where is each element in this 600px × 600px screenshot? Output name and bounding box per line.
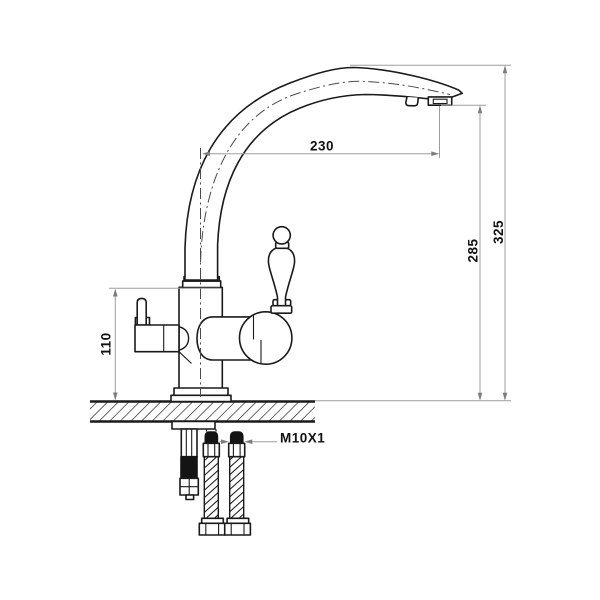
right-valve [197, 312, 292, 364]
dimension-overall-height: 325 [491, 65, 507, 400]
dimension-annotations: 230 110 285 325 M10X1 [99, 65, 512, 445]
hose-left-braid [204, 457, 218, 519]
mounting-stud [180, 429, 198, 500]
left-valve-block [135, 325, 179, 352]
handle-ball-top [273, 227, 290, 244]
faucet-drawing-canvas: 230 110 285 325 M10X1 [0, 0, 600, 600]
spout-underside-tab [406, 97, 419, 106]
dimension-outlet-height: 285 [466, 105, 483, 400]
hose-right [225, 432, 251, 535]
mounting-hardware [172, 422, 250, 536]
spout [185, 68, 462, 281]
handle-dome [240, 312, 292, 364]
dim-110-label: 110 [99, 332, 114, 355]
left-lever-stick [137, 298, 146, 325]
hose-right-braid [230, 457, 244, 519]
arrow-right [431, 151, 439, 156]
spout-tube [185, 68, 462, 281]
hose-left-thread-tip [205, 432, 218, 444]
handle-lever-body [268, 248, 294, 306]
arrow-up [503, 65, 508, 73]
arrow-up [478, 105, 483, 113]
hose-right-thread-tip [230, 432, 243, 444]
countertop-hatch [90, 402, 315, 422]
hose-right-nut [225, 523, 251, 535]
arrow-down [113, 393, 118, 401]
mounting-washer-plate [172, 422, 215, 430]
arrow-down [478, 393, 483, 401]
dimension-body-height: 110 [99, 289, 118, 401]
dim-325-label: 325 [491, 220, 506, 244]
faucet-technical-drawing: 230 110 285 325 M10X1 [0, 0, 600, 600]
faucet-body [135, 68, 462, 402]
arrow-down [503, 393, 508, 401]
stud-tip [186, 495, 194, 500]
dim-230-label: 230 [310, 139, 334, 154]
stud-gasket [181, 457, 198, 479]
spout-centerline [201, 81, 451, 262]
hose-left [199, 429, 225, 535]
thread-label: M10X1 [280, 431, 325, 446]
right-handle [268, 227, 294, 314]
countertop-section [90, 402, 315, 422]
hose-left-nut [199, 523, 225, 535]
arrow-up [113, 289, 118, 297]
dim-285-label: 285 [466, 238, 481, 262]
arrow-right [221, 439, 229, 444]
